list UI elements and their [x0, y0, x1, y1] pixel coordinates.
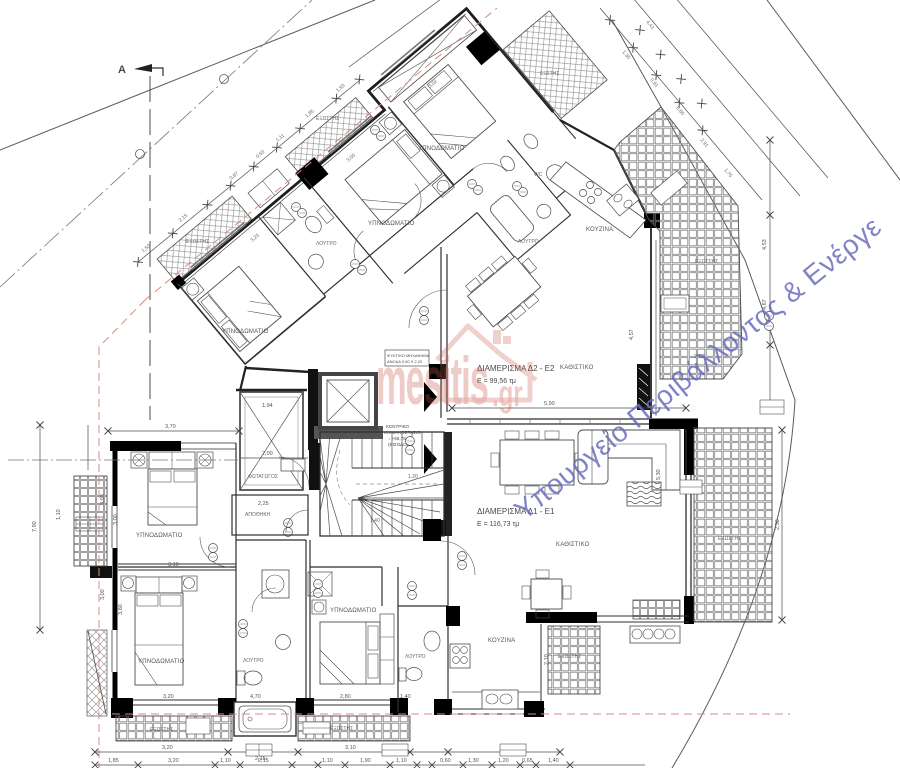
svg-text:2,15: 2,15 — [258, 758, 269, 764]
svg-text:ΚΑΘΙΣΤΙΚΟ: ΚΑΘΙΣΤΙΚΟ — [556, 542, 590, 548]
svg-text:ΕΞΩΣΤΗΣ: ΕΞΩΣΤΗΣ — [186, 239, 209, 245]
svg-text:ΕΞΩΣΤΗΣ: ΕΞΩΣΤΗΣ — [558, 654, 581, 660]
svg-text:2,10: 2,10 — [544, 654, 550, 665]
svg-text:ΚΑΘΙΣΤΙΚΟ: ΚΑΘΙΣΤΙΚΟ — [560, 365, 594, 371]
svg-text:ΦΩΤΑΓΩΓΟΣ: ΦΩΤΑΓΩΓΟΣ — [248, 474, 278, 480]
svg-text:ΛΟΥΤΡΟ: ΛΟΥΤΡΟ — [243, 658, 264, 664]
svg-text:3,20: 3,20 — [163, 694, 174, 700]
svg-text:1,40: 1,40 — [370, 518, 380, 524]
svg-text:2,00: 2,00 — [262, 451, 273, 457]
svg-text:1,40: 1,40 — [400, 694, 411, 700]
svg-text:1,30: 1,30 — [468, 758, 479, 764]
svg-text:2,30: 2,30 — [775, 519, 781, 530]
svg-text:1,90: 1,90 — [360, 758, 371, 764]
svg-text:ΕΞΩΣΤΗΣ: ΕΞΩΣΤΗΣ — [695, 259, 718, 265]
svg-text:ΛΟΥΤΡΟ: ΛΟΥΤΡΟ — [518, 239, 539, 245]
svg-text:3,20: 3,20 — [162, 745, 173, 751]
svg-text:WC: WC — [534, 172, 543, 178]
svg-text:3,00: 3,00 — [113, 514, 119, 525]
svg-text:mesitis: mesitis — [376, 345, 488, 419]
svg-text:.gr: .gr — [492, 373, 523, 415]
svg-text:1,85: 1,85 — [108, 758, 119, 764]
svg-text:ΕΞΩΣΤΗΣ: ΕΞΩΣΤΗΣ — [150, 727, 173, 733]
svg-text:3,00: 3,00 — [100, 589, 106, 600]
svg-text:1,10: 1,10 — [220, 758, 231, 764]
svg-text:1,40: 1,40 — [548, 758, 559, 764]
svg-text:0,60: 0,60 — [440, 758, 451, 764]
svg-text:1,10: 1,10 — [396, 758, 407, 764]
svg-text:A: A — [118, 64, 126, 76]
svg-text:1,10: 1,10 — [322, 758, 333, 764]
svg-text:ΥΠΝΟΔΩΜΑΤΙΟ: ΥΠΝΟΔΩΜΑΤΙΟ — [368, 221, 415, 227]
svg-text:ΚΕΝΤΡΙΚΟ: ΚΕΝΤΡΙΚΟ — [386, 424, 410, 429]
svg-text:2,25: 2,25 — [258, 501, 269, 507]
svg-text:3,60: 3,60 — [118, 604, 124, 615]
svg-text:7,90: 7,90 — [32, 521, 38, 532]
svg-text:2,80: 2,80 — [340, 694, 351, 700]
svg-text:ΕΞΣΤΗΣ: ΕΞΣΤΗΣ — [540, 71, 559, 77]
svg-text:ΛΟΥΤΡΟ: ΛΟΥΤΡΟ — [405, 654, 426, 660]
svg-text:ΕΞΩΣΤΗΣ: ΕΞΩΣΤΗΣ — [316, 116, 339, 122]
svg-text:4,70: 4,70 — [250, 694, 261, 700]
svg-text:1,20: 1,20 — [408, 474, 418, 480]
svg-text:ΚΟΥΖΙΝΑ: ΚΟΥΖΙΝΑ — [488, 638, 515, 644]
svg-text:3,10: 3,10 — [345, 745, 356, 751]
svg-text:ΥΠΝΟΔΩΜΑΤΙΟ: ΥΠΝΟΔΩΜΑΤΙΟ — [222, 329, 269, 335]
svg-text:ΥΠΝΟΔΩΜΑΤΙΟ: ΥΠΝΟΔΩΜΑΤΙΟ — [136, 533, 183, 539]
svg-text:ΚΛΙΜΑΚΟΣΤΑΣΙΟ: ΚΛΙΜΑΚΟΣΤΑΣΙΟ — [384, 430, 421, 435]
svg-text:4,53: 4,53 — [762, 239, 768, 250]
svg-text:ΚΟΥΖΙΝΑ: ΚΟΥΖΙΝΑ — [586, 227, 613, 233]
svg-text:4,57: 4,57 — [629, 329, 635, 340]
svg-text:1,94: 1,94 — [262, 403, 273, 409]
svg-text:ΥΠΝΟΔΩΜΑΤΙΟ: ΥΠΝΟΔΩΜΑΤΙΟ — [330, 608, 377, 614]
svg-text:0,65: 0,65 — [522, 758, 533, 764]
svg-text:1,10: 1,10 — [56, 509, 62, 520]
svg-text:E = 116,73 τμ: E = 116,73 τμ — [477, 521, 519, 528]
svg-text:5,30: 5,30 — [656, 469, 662, 480]
svg-text:ΕΞΩΣΤΗΣ: ΕΞΩΣΤΗΣ — [330, 726, 353, 732]
svg-text:1,20: 1,20 — [498, 758, 509, 764]
svg-text:3,20: 3,20 — [168, 758, 179, 764]
svg-text:3,70: 3,70 — [165, 424, 176, 430]
svg-text:3,00: 3,00 — [100, 494, 106, 505]
svg-text:ΛΟΥΤΡΟ: ΛΟΥΤΡΟ — [316, 241, 337, 247]
svg-text:ΕΞΩΣΤΗΣ: ΕΞΩΣΤΗΣ — [718, 536, 741, 542]
svg-text:ΥΠΝΟΔΩΜΑΤΙΟ: ΥΠΝΟΔΩΜΑΤΙΟ — [138, 659, 185, 665]
svg-text:5,90: 5,90 — [544, 401, 555, 407]
svg-text:ΥΠΝΟΔΩΜΑΤΙΟ: ΥΠΝΟΔΩΜΑΤΙΟ — [418, 146, 465, 152]
svg-text:3,10: 3,10 — [168, 562, 179, 568]
svg-text:ΑΠΟΘΗΚΗ: ΑΠΟΘΗΚΗ — [245, 512, 271, 518]
